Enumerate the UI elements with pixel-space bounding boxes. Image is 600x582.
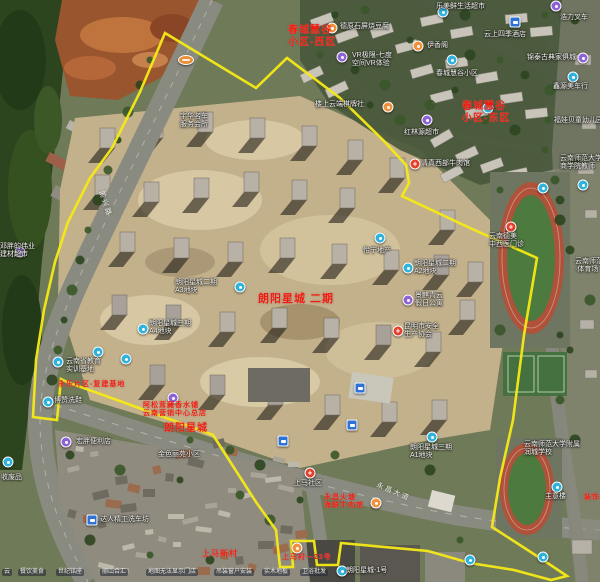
poi-label[interactable]: 红林源超市 bbox=[404, 129, 439, 137]
poi-label[interactable]: 收废品 bbox=[1, 474, 22, 482]
bus-poi-marker-icon[interactable] bbox=[355, 383, 366, 394]
teal-poi-marker-icon[interactable] bbox=[538, 552, 549, 563]
poi-label[interactable]: 主意楼 bbox=[545, 493, 566, 501]
bottom-poi-label[interactable]: 实木地板 bbox=[262, 569, 290, 576]
area-annotation-label: 永昌火塘海鲜牛肉馆 bbox=[324, 494, 364, 511]
poi-label[interactable]: 鑫源美车行 bbox=[553, 83, 588, 91]
area-annotation-label: 阿松茸藏香水铺云南营销中心总店 bbox=[143, 402, 207, 419]
satellite-map-viewport[interactable]: 春城慧谷小区-西区春城慧谷小区-东区朗阳星城 二期朗阳星城阿松茸藏香水铺云南营销… bbox=[0, 0, 600, 582]
poi-label[interactable]: 朗阳星城二期A3地块 bbox=[175, 279, 217, 296]
area-annotation-label: 上马村—23号 bbox=[282, 554, 332, 562]
purple-poi-marker-icon[interactable] bbox=[403, 295, 414, 306]
poi-label[interactable]: 怡宁地产 bbox=[363, 247, 391, 255]
bus-poi-marker-icon[interactable] bbox=[87, 515, 98, 526]
poi-label[interactable]: 朗阳星城-1号 bbox=[346, 567, 387, 575]
teal-poi-marker-icon[interactable] bbox=[427, 432, 438, 443]
area-annotation-label: 春城慧谷小区-东区 bbox=[462, 101, 510, 125]
teal-poi-marker-icon[interactable] bbox=[403, 263, 414, 274]
purple-poi-marker-icon[interactable] bbox=[422, 115, 433, 126]
poi-label[interactable]: 朗阳星城三期A4地块 bbox=[149, 320, 191, 337]
poi-label[interactable]: 朗阳星城二期A2地块 bbox=[414, 260, 456, 277]
poi-label[interactable]: 宇华名车服务会所 bbox=[180, 113, 208, 130]
bus-poi-marker-icon[interactable] bbox=[510, 17, 521, 28]
poi-label[interactable]: VR极限-七度空间VR体验 bbox=[352, 52, 392, 69]
poi-label[interactable]: 清真西部牛肉馆 bbox=[421, 160, 470, 168]
poi-label[interactable]: 宏胖便利店 bbox=[76, 438, 111, 446]
bus-poi-marker-icon[interactable] bbox=[278, 436, 289, 447]
orange-poi-marker-icon[interactable] bbox=[292, 543, 303, 554]
teal-poi-marker-icon[interactable] bbox=[538, 183, 549, 194]
poi-label[interactable]: 浩力叉车 bbox=[560, 14, 588, 22]
red-poi-marker-icon[interactable] bbox=[393, 326, 404, 337]
satellite-basemap bbox=[0, 0, 600, 582]
poi-label[interactable]: 昆明市安全生产协会 bbox=[404, 323, 439, 340]
teal-poi-marker-icon[interactable] bbox=[568, 72, 579, 83]
bottom-poi-label[interactable]: 卫浴批发 bbox=[300, 569, 328, 576]
purple-poi-marker-icon[interactable] bbox=[337, 52, 348, 63]
area-annotation-label: 上马新村 bbox=[202, 549, 238, 559]
bottom-poi-label[interactable]: 云 bbox=[2, 569, 12, 576]
poi-label[interactable]: 锦泰古典家俱城 bbox=[527, 54, 576, 62]
orange-poi-marker-icon[interactable] bbox=[383, 102, 394, 113]
poi-label[interactable]: 邓胖的伟业建材超市 bbox=[0, 243, 35, 260]
teal-poi-marker-icon[interactable] bbox=[447, 55, 458, 66]
poi-label[interactable]: 福娃贝童幼儿园 bbox=[554, 117, 600, 125]
sports-courts bbox=[503, 352, 567, 396]
red-poi-marker-icon[interactable] bbox=[506, 222, 517, 233]
poi-label[interactable]: 上马社区 bbox=[294, 480, 322, 488]
area-annotation-label: 永乐片区-复建基地 bbox=[58, 381, 125, 389]
poi-label[interactable]: 云南德美中西医门诊 bbox=[489, 233, 524, 250]
bottom-poi-label[interactable]: 吊装窗户安装 bbox=[214, 569, 254, 576]
teal-poi-marker-icon[interactable] bbox=[138, 324, 149, 335]
purple-poi-marker-icon[interactable] bbox=[551, 1, 562, 12]
bus-poi-marker-icon[interactable] bbox=[347, 420, 358, 431]
area-annotation-label: 朗阳星城 bbox=[164, 423, 208, 435]
poi-label[interactable]: 伊香阁 bbox=[427, 42, 448, 50]
area-annotation-label: 朗阳星城 二期 bbox=[258, 293, 334, 306]
poi-label[interactable]: 楼上云端棋牌社 bbox=[315, 101, 364, 109]
poi-label[interactable]: 云上四季酒店 bbox=[484, 31, 526, 39]
poi-label[interactable]: 博赞洗鞋 bbox=[54, 397, 82, 405]
road-shield-icon bbox=[178, 55, 194, 65]
teal-poi-marker-icon[interactable] bbox=[578, 180, 589, 191]
poi-label[interactable]: 云南省教育实训基地 bbox=[66, 358, 101, 375]
poi-label[interactable]: 德原石屏烧豆腐 bbox=[340, 23, 389, 31]
teal-poi-marker-icon[interactable] bbox=[93, 347, 104, 358]
red-poi-marker-icon[interactable] bbox=[305, 468, 316, 479]
teal-poi-marker-icon[interactable] bbox=[235, 282, 246, 293]
area-annotation-label: 装饰 bbox=[584, 494, 600, 502]
orange-poi-marker-icon[interactable] bbox=[413, 41, 424, 52]
poi-label[interactable]: 金色丽苑小区 bbox=[158, 451, 200, 459]
bottom-poi-label[interactable]: 世纪铭座 bbox=[56, 569, 84, 576]
purple-poi-marker-icon[interactable] bbox=[61, 437, 72, 448]
bottom-poi-label[interactable]: 地图无法显示门店 bbox=[146, 569, 198, 576]
teal-poi-marker-icon[interactable] bbox=[465, 555, 476, 566]
teal-poi-marker-icon[interactable] bbox=[53, 357, 64, 368]
poi-label[interactable]: 云南师范大学商学院教师 bbox=[560, 155, 600, 172]
bottom-poi-label[interactable]: 丽山合汇 bbox=[100, 569, 128, 576]
teal-poi-marker-icon[interactable] bbox=[121, 354, 132, 365]
teal-poi-marker-icon[interactable] bbox=[43, 397, 54, 408]
poi-label[interactable]: 乐美鲜生活超市 bbox=[436, 3, 485, 11]
teal-poi-marker-icon[interactable] bbox=[552, 482, 563, 493]
teal-poi-marker-icon[interactable] bbox=[375, 233, 386, 244]
poi-label[interactable]: 达人精工洗车坊 bbox=[100, 516, 149, 524]
teal-poi-marker-icon[interactable] bbox=[3, 457, 14, 468]
poi-label[interactable]: 朗阳星城三期A1地块 bbox=[410, 444, 452, 461]
purple-poi-marker-icon[interactable] bbox=[578, 53, 589, 64]
red-poi-marker-icon[interactable] bbox=[410, 159, 421, 170]
poi-label[interactable]: 春城慧谷小区 bbox=[436, 70, 478, 78]
poi-label[interactable]: 云南师范·体育场 bbox=[575, 258, 600, 275]
poi-label[interactable]: 云南师范大学附属润城学校 bbox=[524, 441, 580, 458]
area-annotation-label: 春城慧谷小区-西区 bbox=[288, 25, 336, 49]
bottom-poi-label[interactable]: 餐饮美食 bbox=[18, 569, 46, 576]
orange-poi-marker-icon[interactable] bbox=[371, 498, 382, 509]
poi-label[interactable]: 景麒青云假日公寓 bbox=[415, 292, 443, 309]
